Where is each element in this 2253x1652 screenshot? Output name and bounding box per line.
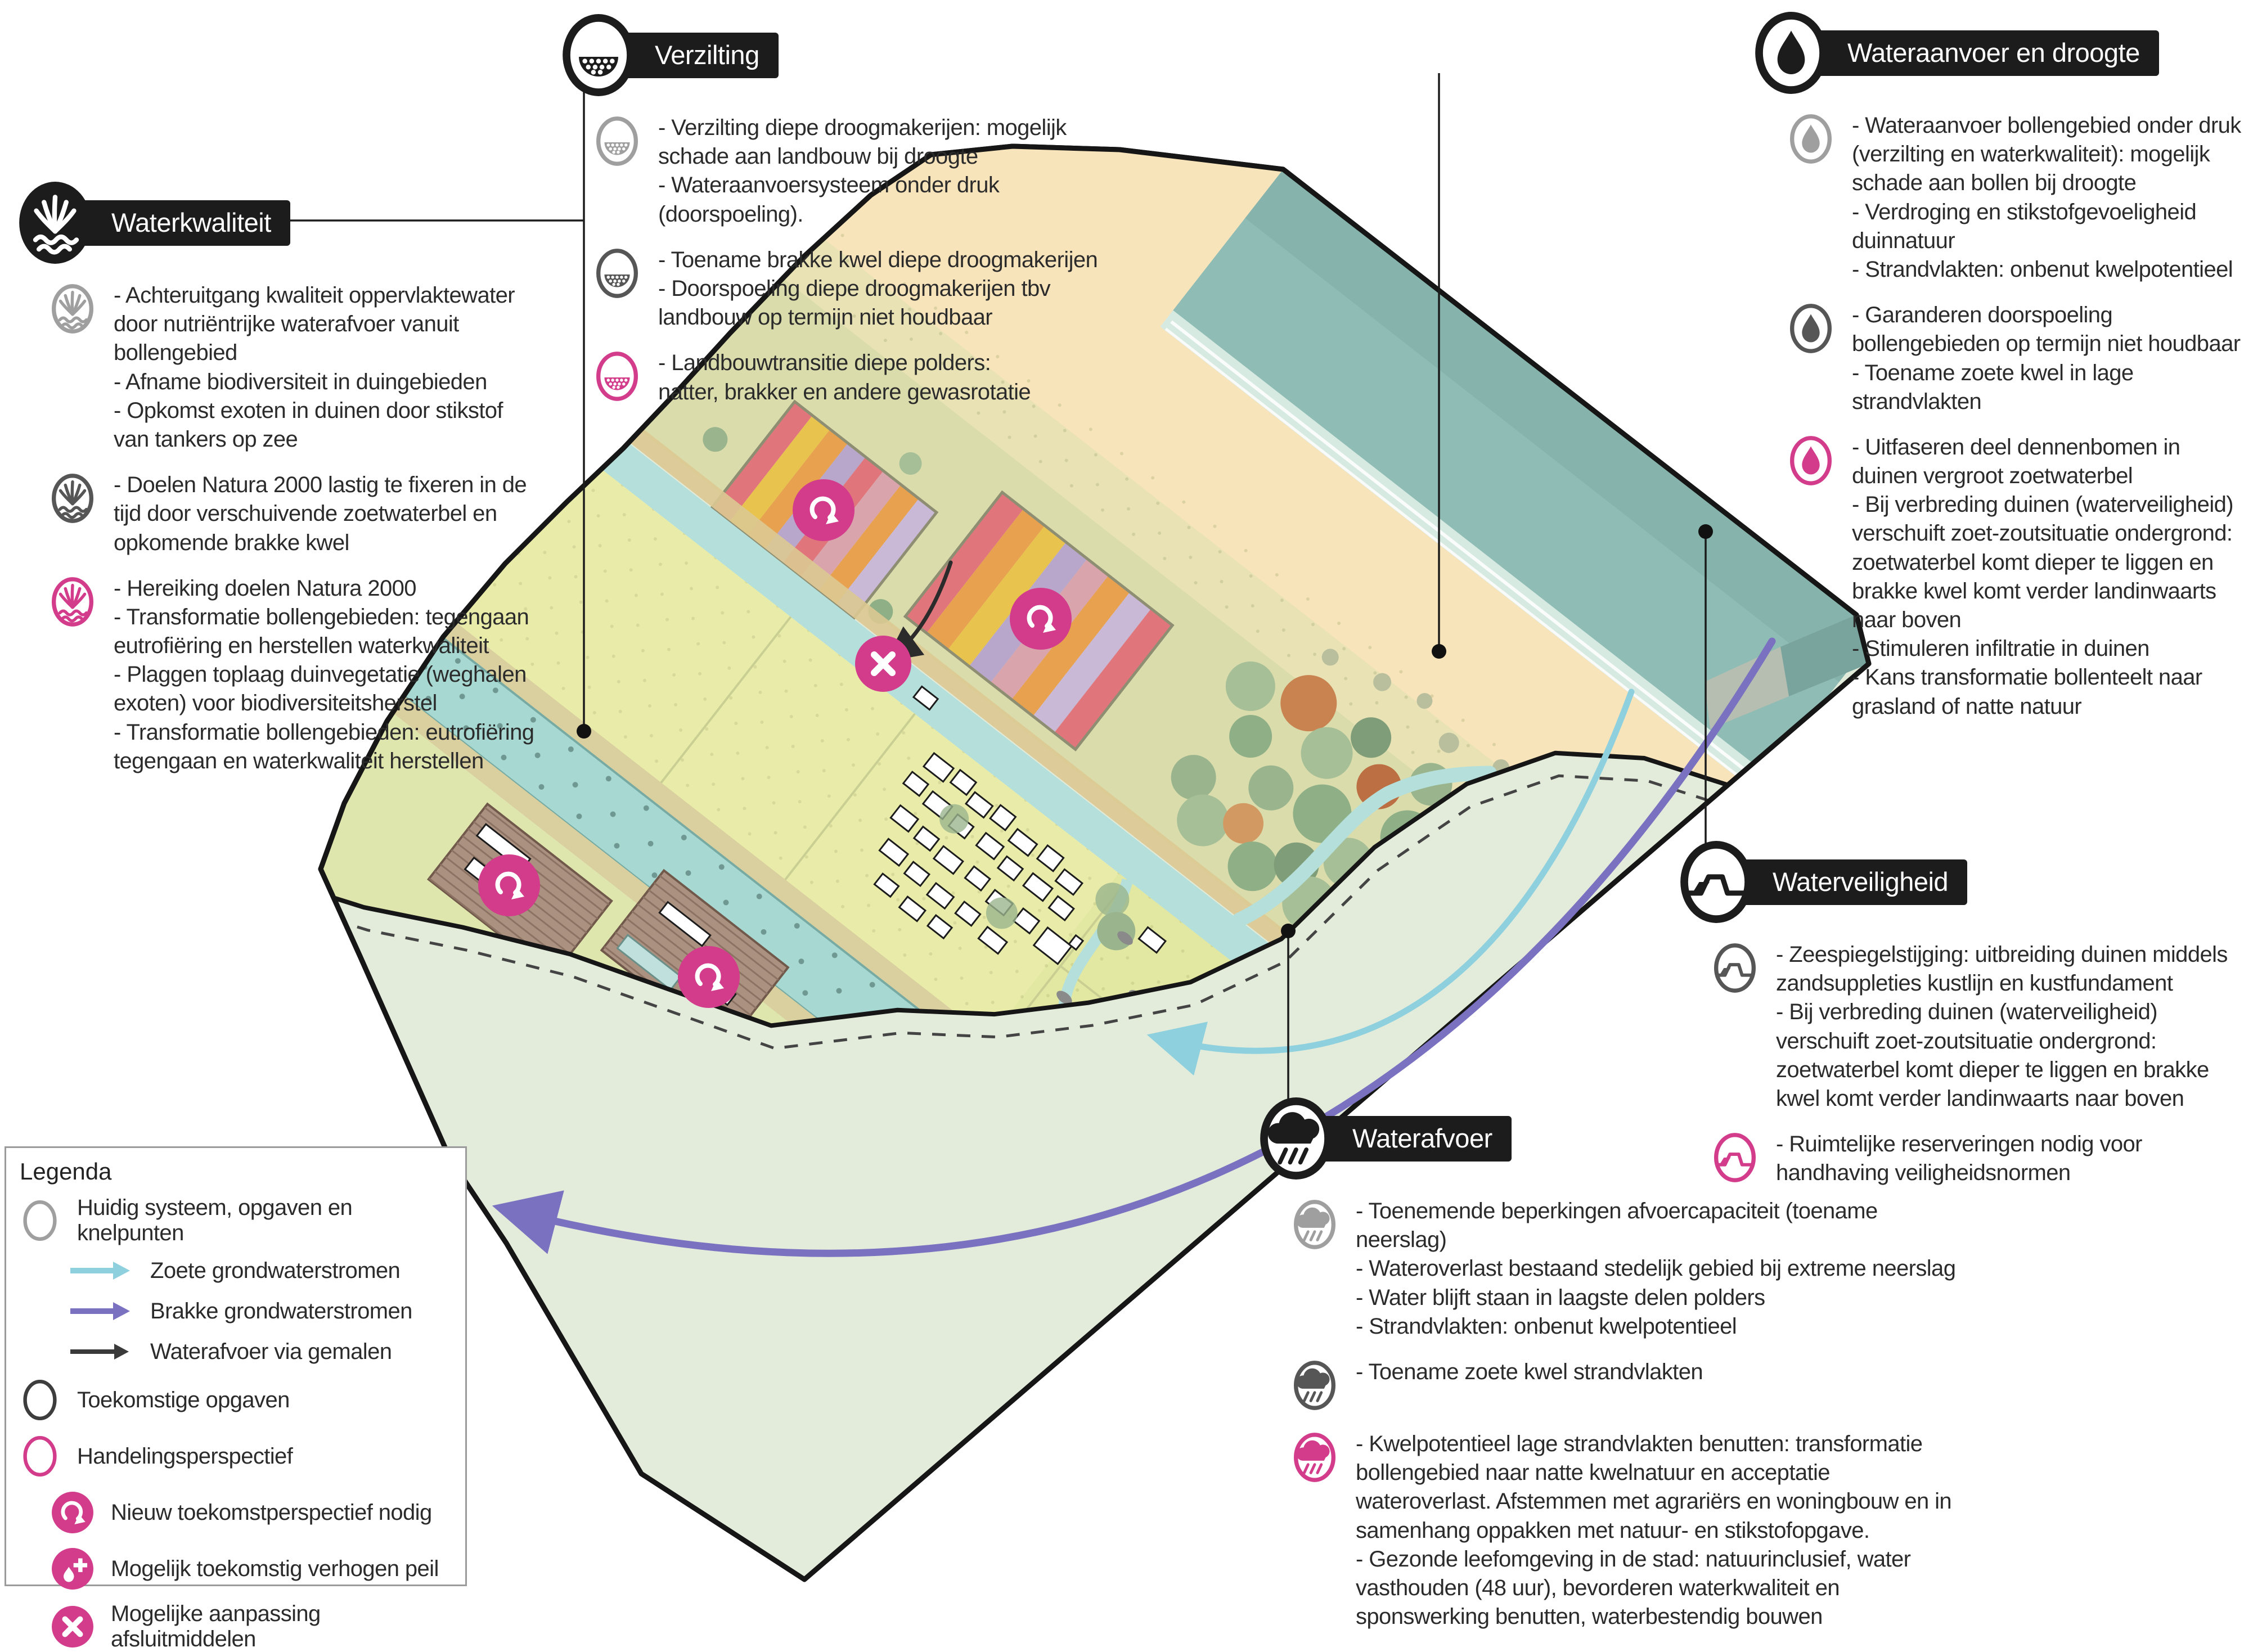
item-text: - Zeespiegelstijging: uitbreiding duinen… — [1776, 940, 2242, 1113]
reed-icon — [45, 281, 100, 336]
legend-label: Toekomstige opgaven — [77, 1388, 290, 1413]
close-icon — [49, 1603, 96, 1650]
section-waterkwaliteit: Waterkwaliteit - Achteruitgang kwaliteit… — [12, 180, 541, 793]
list-item: - Verzilting diepe droogmakerijen: mogel… — [590, 114, 1130, 229]
item-text: - Garanderen doorspoeling bollengebieden… — [1852, 301, 2243, 416]
circle-outline-dark-icon — [17, 1376, 62, 1424]
item-text: - Verzilting diepe droogmakerijen: mogel… — [658, 114, 1130, 229]
raise-level-icon — [49, 1545, 96, 1592]
arrow-cyan-icon — [66, 1255, 136, 1286]
legend-label: Mogelijk toekomstig verhogen peil — [111, 1556, 439, 1582]
salt-icon — [590, 114, 645, 169]
item-text: - Landbouwtransitie diepe polders: natte… — [658, 349, 1031, 406]
rain-cloud-icon — [1253, 1096, 1339, 1181]
list-item: - Kwelpotentieel lage strandvlakten benu… — [1287, 1430, 1957, 1631]
item-text: - Achteruitgang kwaliteit oppervlaktewat… — [114, 281, 541, 454]
drop-icon — [1783, 301, 1838, 356]
waterkwaliteit-header: Waterkwaliteit — [12, 180, 541, 265]
list-item: - Hereiking doelen Natura 2000 - Transfo… — [45, 574, 541, 776]
list-item: - Toenemende beperkingen afvoercapacitei… — [1287, 1197, 1957, 1341]
dune-icon — [1707, 940, 1762, 996]
legend-label: Nieuw toekomstperspectief nodig — [111, 1500, 432, 1525]
item-text: - Wateraanvoer bollengebied onder druk (… — [1852, 111, 2243, 284]
list-item: - Toename brakke kwel diepe droogmakerij… — [590, 246, 1130, 332]
item-text: - Hereiking doelen Natura 2000 - Transfo… — [114, 574, 541, 776]
item-text: - Toenemende beperkingen afvoercapacitei… — [1356, 1197, 1957, 1341]
legend-label: Huidig systeem, opgaven en knelpunten — [77, 1195, 454, 1246]
arrow-black-icon — [66, 1336, 136, 1367]
section-wateraanvoer: Wateraanvoer en droogte - Wateraanvoer b… — [1748, 10, 2243, 738]
section-title: Verzilting — [620, 33, 779, 78]
list-item: - Landbouwtransitie diepe polders: natte… — [590, 349, 1130, 406]
legend-item: Mogelijke aanpassing afsluitmiddelen — [49, 1601, 454, 1652]
section-title: Waterkwaliteit — [77, 200, 290, 246]
reed-icon — [45, 574, 100, 629]
section-verzilting: Verzilting - Verzilting diepe droogmaker… — [556, 12, 1130, 424]
salt-icon — [556, 12, 641, 98]
legend-item: Nieuw toekomstperspectief nodig — [49, 1489, 454, 1536]
section-title: Wateraanvoer en droogte — [1813, 30, 2159, 76]
reed-icon — [45, 471, 100, 526]
legend: Legenda Huidig systeem, opgaven en knelp… — [5, 1146, 467, 1586]
salt-icon — [590, 349, 645, 404]
legend-item: Toekomstige opgaven — [17, 1376, 454, 1424]
arrow-purple-icon — [66, 1295, 136, 1327]
waterafvoer-header: Waterafvoer — [1253, 1096, 1957, 1181]
waterveiligheid-header: Waterveiligheid — [1674, 839, 2242, 925]
item-text: - Kwelpotentieel lage strandvlakten benu… — [1356, 1430, 1957, 1631]
list-item: - Toename zoete kwel strandvlakten — [1287, 1358, 1957, 1413]
list-item: - Doelen Natura 2000 lastig te fixeren i… — [45, 471, 541, 557]
legend-item: Zoete grondwaterstromen — [66, 1255, 454, 1286]
renew-icon — [1010, 588, 1072, 650]
rain-cloud-icon — [1287, 1430, 1342, 1485]
item-text: - Toename brakke kwel diepe droogmakerij… — [658, 246, 1130, 332]
legend-item: Brakke grondwaterstromen — [66, 1295, 454, 1327]
item-text: - Doelen Natura 2000 lastig te fixeren i… — [114, 471, 541, 557]
legend-label: Handelingsperspectief — [77, 1444, 293, 1469]
renew-icon — [793, 479, 855, 541]
renew-icon — [49, 1489, 96, 1536]
dune-icon — [1674, 839, 1759, 925]
list-item: - Garanderen doorspoeling bollengebieden… — [1783, 301, 2243, 416]
legend-item: Huidig systeem, opgaven en knelpunten — [17, 1195, 454, 1246]
wateraanvoer-header: Wateraanvoer en droogte — [1748, 10, 2243, 96]
section-waterafvoer: Waterafvoer - Toenemende beperkingen afv… — [1253, 1096, 1957, 1648]
renew-icon — [478, 854, 540, 916]
drop-icon — [1748, 10, 1834, 96]
list-item: - Uitfaseren deel dennenbomen in duinen … — [1783, 433, 2243, 721]
circle-outline-pink-icon — [17, 1433, 62, 1480]
drop-icon — [1783, 111, 1838, 166]
legend-label: Zoete grondwaterstromen — [150, 1258, 400, 1284]
rain-cloud-icon — [1287, 1358, 1342, 1413]
circle-outline-gray-icon — [17, 1197, 62, 1244]
legend-item: Handelingsperspectief — [17, 1433, 454, 1480]
list-item: - Achteruitgang kwaliteit oppervlaktewat… — [45, 281, 541, 454]
rain-cloud-icon — [1287, 1197, 1342, 1252]
renew-icon — [678, 946, 740, 1008]
legend-title: Legenda — [20, 1158, 454, 1185]
item-text: - Uitfaseren deel dennenbomen in duinen … — [1852, 433, 2243, 721]
section-title: Waterveiligheid — [1738, 859, 1967, 905]
legend-label: Mogelijke aanpassing afsluitmiddelen — [111, 1601, 454, 1652]
section-title: Waterafvoer — [1317, 1116, 1512, 1162]
verzilting-header: Verzilting — [556, 12, 1130, 98]
salt-icon — [590, 246, 645, 301]
legend-label: Waterafvoer via gemalen — [150, 1339, 392, 1365]
legend-label: Brakke grondwaterstromen — [150, 1299, 412, 1324]
list-item: - Zeespiegelstijging: uitbreiding duinen… — [1707, 940, 2242, 1113]
close-icon — [855, 636, 911, 692]
legend-item: Mogelijk toekomstig verhogen peil — [49, 1545, 454, 1592]
legend-item: Waterafvoer via gemalen — [66, 1336, 454, 1367]
item-text: - Toename zoete kwel strandvlakten — [1356, 1358, 1703, 1387]
reed-icon — [12, 180, 98, 265]
list-item: - Wateraanvoer bollengebied onder druk (… — [1783, 111, 2243, 284]
drop-icon — [1783, 433, 1838, 488]
